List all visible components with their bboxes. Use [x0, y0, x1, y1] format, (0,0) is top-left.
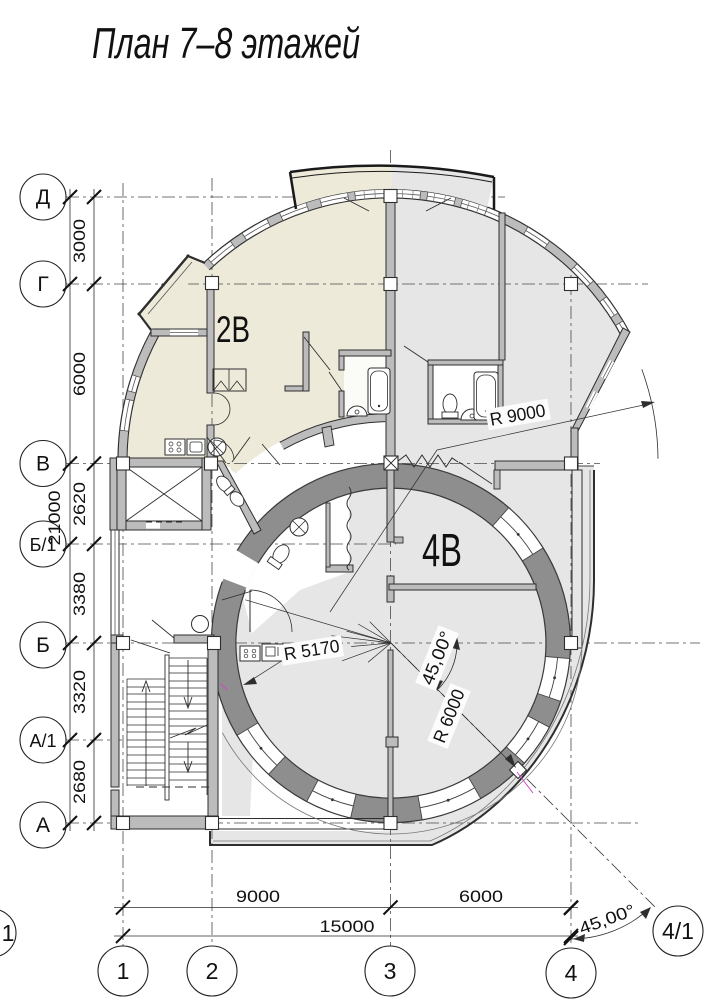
svg-text:2620: 2620: [70, 482, 89, 526]
svg-text:2В: 2В: [216, 309, 250, 350]
svg-text:Д: Д: [36, 186, 50, 209]
svg-text:3320: 3320: [70, 670, 89, 714]
svg-text:В: В: [36, 453, 50, 476]
svg-text:4/1: 4/1: [662, 918, 694, 944]
svg-text:9000: 9000: [236, 887, 280, 906]
svg-text:3380: 3380: [70, 572, 89, 616]
svg-text:План 7–8 этажей: План 7–8 этажей: [92, 19, 360, 68]
svg-text:45,00°: 45,00°: [577, 901, 638, 939]
svg-text:1: 1: [2, 920, 15, 946]
svg-text:6000: 6000: [459, 887, 503, 906]
svg-text:21000: 21000: [45, 491, 64, 546]
svg-text:15000: 15000: [320, 917, 375, 936]
svg-text:4В: 4В: [422, 524, 462, 576]
svg-text:3: 3: [384, 958, 397, 984]
svg-text:Г: Г: [37, 273, 48, 296]
svg-text:2: 2: [206, 958, 219, 984]
svg-text:4: 4: [565, 960, 578, 986]
svg-text:А/1: А/1: [29, 731, 56, 751]
svg-text:Б: Б: [36, 634, 50, 657]
svg-text:1: 1: [117, 958, 130, 984]
svg-text:3000: 3000: [70, 219, 89, 263]
svg-text:6000: 6000: [70, 352, 89, 396]
svg-text:А: А: [36, 814, 50, 837]
svg-text:2680: 2680: [70, 760, 89, 804]
